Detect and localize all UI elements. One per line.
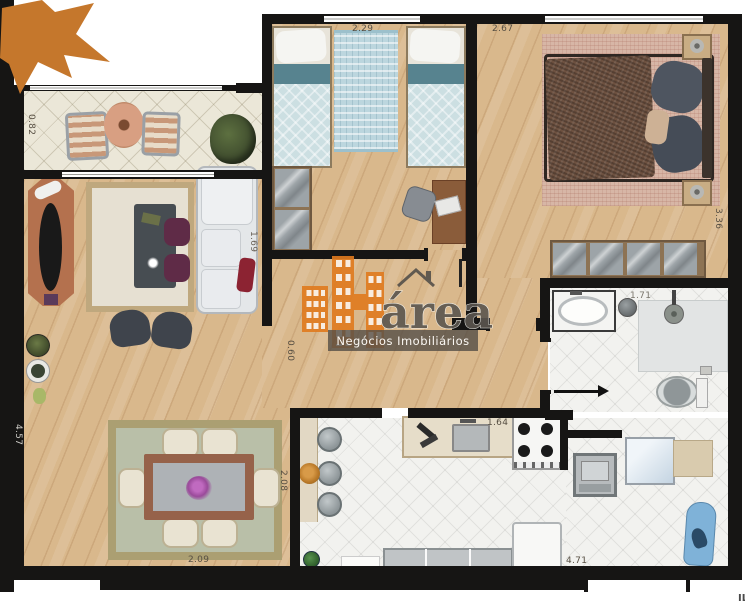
dimension-bathroom-width: 1.71	[630, 292, 651, 301]
dining-table-flowers	[186, 476, 212, 500]
console-purple-box	[44, 294, 58, 305]
bed2-right-quilt	[408, 84, 464, 166]
master-wardrobe-door-4	[664, 243, 697, 275]
balcony-lounge-chair-left	[65, 111, 109, 161]
wall-dining-kitchen	[290, 408, 300, 566]
laundry-tank-lip	[579, 484, 611, 492]
sofa-seat-cushion-2	[201, 269, 241, 309]
sofa-chaise-cushion	[201, 171, 253, 225]
master-wardrobe-door-3	[627, 243, 660, 275]
wall-right	[728, 14, 742, 580]
tick-master-door-2	[536, 318, 540, 331]
tick-bottom-1	[584, 580, 588, 592]
wall-left	[14, 85, 24, 566]
watermark-logo: área Negócios Imobiliários	[300, 250, 478, 355]
master-wardrobe-door-2	[590, 243, 623, 275]
dining-chair-left	[118, 468, 146, 508]
wall-bedroom2-left	[262, 14, 272, 326]
wall-master-bath	[540, 278, 730, 288]
toilet-bowl	[656, 376, 698, 408]
kitchen-stool-1	[317, 427, 342, 452]
bathroom-sink	[558, 296, 608, 326]
tick-kitchen-door-1	[378, 408, 382, 418]
kitchen-faucet	[460, 419, 476, 423]
balcony-railing-cap	[236, 83, 262, 93]
tick-bottom-2	[686, 580, 690, 592]
tick-kitchen-door-2	[408, 408, 412, 418]
floor-plan: 0.82 2.29 2.67 1.69 3.36 1.71 0.60 1.64 …	[0, 0, 745, 605]
dimension-kitchen-counter: 1.64	[487, 419, 508, 428]
dimension-balcony-depth: 0.82	[26, 114, 35, 135]
nightstand-top-lamp	[690, 39, 704, 53]
window-bedroom2	[322, 16, 422, 22]
dimension-dining-rug-depth: 2.08	[278, 470, 287, 491]
sofa-seat-cushion-1	[201, 229, 241, 267]
wall-service-divider	[564, 430, 622, 438]
window-master	[545, 16, 703, 22]
bed2-right-pillow	[409, 28, 461, 63]
wall-bottom	[14, 566, 742, 580]
living-small-plant	[33, 388, 46, 404]
bed2-left-quilt	[274, 84, 330, 166]
dimension-bedroom2-width: 2.29	[352, 25, 373, 34]
service-counter	[673, 440, 713, 477]
stove-knobs	[514, 462, 562, 468]
balcony-round-table	[104, 102, 144, 148]
balcony-sliding-door	[62, 172, 214, 177]
wall-bottom-thick	[100, 580, 584, 590]
kitchen-stool-3	[317, 492, 342, 517]
watermark-tagline: Negócios Imobiliários	[336, 334, 469, 348]
living-plant-pot	[26, 334, 50, 357]
wall-kitchen-top-left	[300, 408, 382, 418]
dimension-hall-width: 0.60	[285, 340, 294, 361]
footer-notice-text: Imagem meramente ilustrativa.	[738, 592, 745, 605]
wall-bath-left-upper	[540, 288, 550, 342]
harea-logo-icon: área Negócios Imobiliários	[300, 250, 478, 355]
dimension-master-width: 2.67	[492, 25, 513, 34]
washing-machine	[625, 437, 675, 485]
nightstand-bottom-lamp	[690, 185, 704, 199]
shower-head	[664, 304, 684, 324]
dimension-dining-rug-width: 2.09	[188, 556, 209, 565]
dimension-master-depth: 3.36	[713, 208, 722, 229]
kitchen-sink	[452, 424, 490, 452]
wall-kitchen-top-right	[410, 408, 548, 418]
pouf-bottom	[164, 254, 190, 282]
entry-arrow-line	[554, 390, 600, 393]
toilet-tank	[696, 378, 708, 408]
bed2-left-band	[274, 64, 330, 84]
dimension-sofa-length: 1.69	[248, 231, 257, 252]
bed2-wardrobe-door-2	[275, 210, 309, 249]
fridge	[512, 522, 562, 572]
bed2-right-band	[408, 64, 464, 84]
stove-burner-2	[541, 423, 553, 435]
kitchen-round-table	[299, 463, 320, 484]
console-black-bowl	[39, 203, 62, 291]
balcony-lounge-chair-right	[141, 111, 181, 156]
bed2-left-pillow	[275, 28, 327, 63]
pouf-top	[164, 218, 190, 246]
toilet-paper-holder	[700, 366, 712, 375]
dimension-service-width: 4.71	[566, 557, 587, 566]
tick-bath-door-2	[540, 390, 551, 394]
dining-chair-bottom-2	[201, 518, 238, 548]
bed2-rug	[334, 30, 398, 152]
tick-window-2	[420, 14, 424, 24]
balcony-plant	[210, 114, 256, 164]
shower-arm	[672, 290, 676, 305]
wall-bath-step	[545, 410, 573, 420]
kitchen-stool-2	[317, 461, 342, 486]
master-bed-blanket	[545, 55, 655, 181]
stove-burner-3	[518, 445, 530, 457]
master-headboard	[702, 58, 712, 178]
dimension-living-depth: 4.57	[13, 424, 22, 445]
footer-notice: ILUSTRAÇÃO ARTÍSTICA: Imagem meramente i…	[0, 592, 745, 605]
dining-chair-bottom-1	[162, 518, 199, 548]
entry-arrow-head	[598, 385, 609, 397]
laundry-tank-basin	[581, 461, 609, 481]
stove-burner-1	[518, 423, 530, 435]
tick-bath-door-1	[540, 338, 551, 342]
living-plant-inner	[31, 364, 45, 378]
bed2-wardrobe-door-1	[275, 169, 309, 207]
dining-chair-right	[252, 468, 280, 508]
wall-kitchen-service	[560, 418, 568, 470]
bathroom-faucet	[570, 291, 582, 295]
coffee-table-flower	[146, 256, 160, 270]
stove-burner-4	[541, 445, 553, 457]
master-wardrobe-door-1	[553, 243, 586, 275]
starburst-shape	[0, 0, 115, 100]
tick-window-1	[320, 14, 324, 24]
